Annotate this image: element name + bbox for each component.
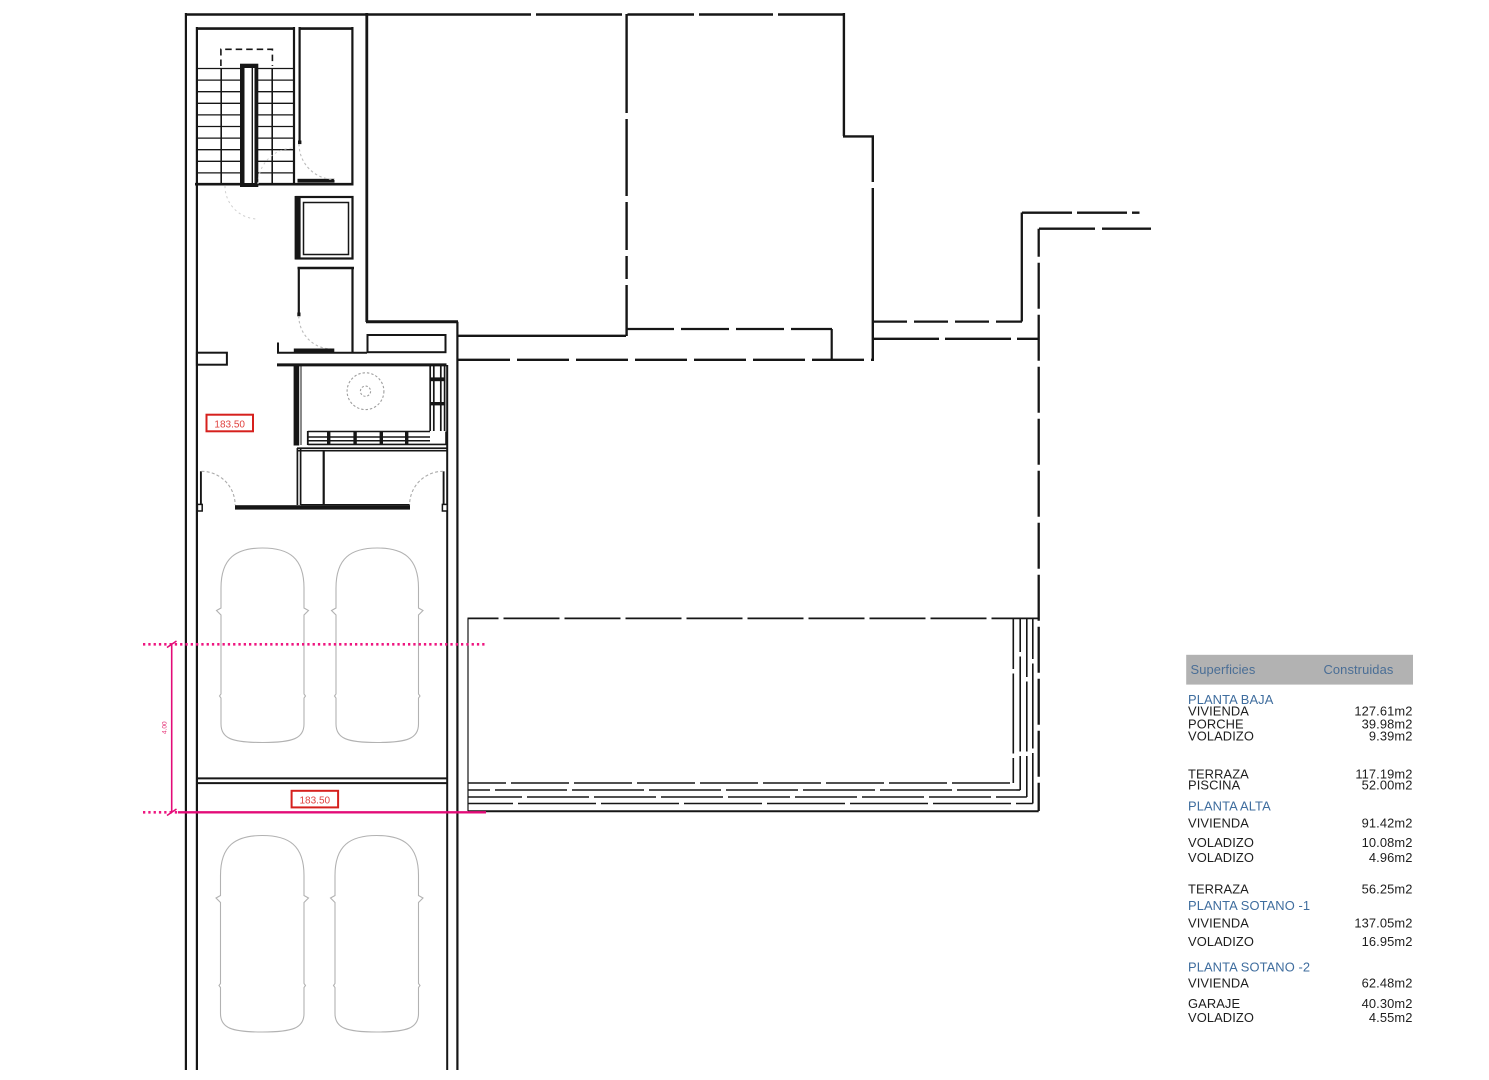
svg-text:9.39m2: 9.39m2 xyxy=(1369,729,1413,744)
svg-text:VIVIENDA: VIVIENDA xyxy=(1188,976,1249,991)
svg-text:Superficies: Superficies xyxy=(1191,662,1256,677)
svg-text:4.96m2: 4.96m2 xyxy=(1369,850,1413,865)
svg-text:62.48m2: 62.48m2 xyxy=(1362,976,1413,991)
svg-text:137.05m2: 137.05m2 xyxy=(1354,916,1412,931)
svg-text:40.30m2: 40.30m2 xyxy=(1362,996,1413,1011)
svg-text:4.55m2: 4.55m2 xyxy=(1369,1010,1413,1025)
svg-text:4.00: 4.00 xyxy=(162,721,169,734)
svg-text:VIVIENDA: VIVIENDA xyxy=(1188,916,1249,931)
svg-text:16.95m2: 16.95m2 xyxy=(1362,934,1413,949)
svg-text:VOLADIZO: VOLADIZO xyxy=(1188,729,1254,744)
svg-text:GARAJE: GARAJE xyxy=(1188,996,1240,1011)
svg-text:VOLADIZO: VOLADIZO xyxy=(1188,1010,1254,1025)
svg-text:183.50: 183.50 xyxy=(214,419,245,430)
svg-text:183.50: 183.50 xyxy=(300,795,331,806)
svg-text:52.00m2: 52.00m2 xyxy=(1362,778,1413,793)
svg-text:91.42m2: 91.42m2 xyxy=(1362,815,1413,830)
svg-text:PLANTA SOTANO -1: PLANTA SOTANO -1 xyxy=(1188,898,1310,913)
svg-text:VOLADIZO: VOLADIZO xyxy=(1188,850,1254,865)
svg-text:Construidas: Construidas xyxy=(1324,662,1394,677)
svg-text:TERRAZA: TERRAZA xyxy=(1188,881,1249,896)
svg-text:PLANTA ALTA: PLANTA ALTA xyxy=(1188,798,1271,813)
svg-text:56.25m2: 56.25m2 xyxy=(1362,881,1413,896)
svg-text:VOLADIZO: VOLADIZO xyxy=(1188,835,1254,850)
svg-text:10.08m2: 10.08m2 xyxy=(1362,835,1413,850)
svg-text:PLANTA SOTANO -2: PLANTA SOTANO -2 xyxy=(1188,960,1310,975)
svg-text:VOLADIZO: VOLADIZO xyxy=(1188,934,1254,949)
svg-text:VIVIENDA: VIVIENDA xyxy=(1188,815,1249,830)
svg-text:PISCINA: PISCINA xyxy=(1188,778,1241,793)
